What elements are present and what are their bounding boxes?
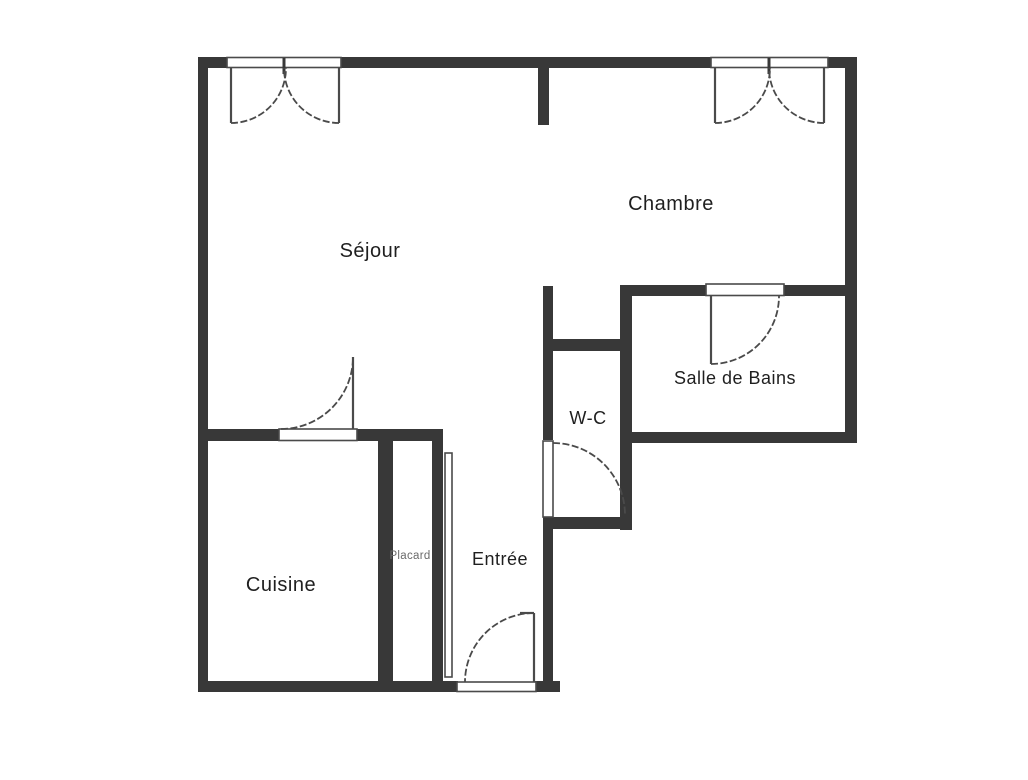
- wall-bottom-left-segment: [198, 681, 458, 692]
- wall-wc-top: [543, 339, 632, 351]
- wall-cuisine-top-right: [356, 429, 443, 441]
- room-label-placard: Placard: [389, 550, 430, 562]
- chambre-window-left-swing-arc: [715, 68, 770, 123]
- entrance-door-threshold: [457, 682, 536, 692]
- sejour-window: [227, 58, 341, 124]
- room-label-chambre: Chambre: [628, 193, 714, 215]
- entrance-door: [457, 613, 536, 692]
- room-labels: Séjour Chambre Salle de Bains W-C Entrée…: [246, 193, 796, 596]
- wall-bathroom-top-right: [783, 285, 857, 296]
- wall-entree-right-upper: [543, 286, 553, 440]
- placard-door: [445, 453, 452, 677]
- wc-door: [543, 441, 625, 517]
- floor-plan-drawing: Séjour Chambre Salle de Bains W-C Entrée…: [0, 0, 1028, 780]
- sejour-window-left-swing-arc: [231, 68, 286, 123]
- entrance-door-swing-arc: [465, 613, 534, 682]
- room-label-entree: Entrée: [472, 549, 528, 569]
- wall-wc-bottom: [543, 517, 632, 529]
- cuisine-door: [279, 357, 357, 441]
- room-label-sejour: Séjour: [340, 240, 401, 262]
- room-label-wc: W-C: [569, 408, 606, 428]
- chambre-window-right-swing-arc: [769, 68, 824, 123]
- wall-placard-right: [432, 441, 443, 681]
- wall-entree-right-lower: [543, 517, 553, 692]
- wall-sejour-chambre-stub: [538, 57, 549, 125]
- wc-door-swing-arc: [553, 443, 625, 515]
- cuisine-door-swing-arc: [281, 357, 353, 429]
- room-label-salle-de-bains: Salle de Bains: [674, 368, 796, 388]
- wall-cuisine-top-left: [198, 429, 280, 441]
- bathroom-door: [706, 284, 784, 364]
- wall-bathroom-bottom: [620, 432, 857, 443]
- chambre-window: [711, 58, 828, 124]
- bathroom-door-threshold: [706, 284, 784, 296]
- wall-bathroom-top-left: [620, 285, 707, 296]
- wall-top-middle-segment: [340, 57, 712, 68]
- wc-door-leaf: [543, 441, 553, 517]
- placard-door-panel: [445, 453, 452, 677]
- room-label-cuisine: Cuisine: [246, 574, 316, 596]
- bathroom-door-swing-arc: [711, 296, 779, 364]
- wall-right: [845, 57, 857, 443]
- wall-left: [198, 57, 208, 692]
- floor-plan-page: Séjour Chambre Salle de Bains W-C Entrée…: [0, 0, 1028, 780]
- sejour-window-right-swing-arc: [284, 68, 339, 123]
- cuisine-door-threshold: [279, 429, 357, 441]
